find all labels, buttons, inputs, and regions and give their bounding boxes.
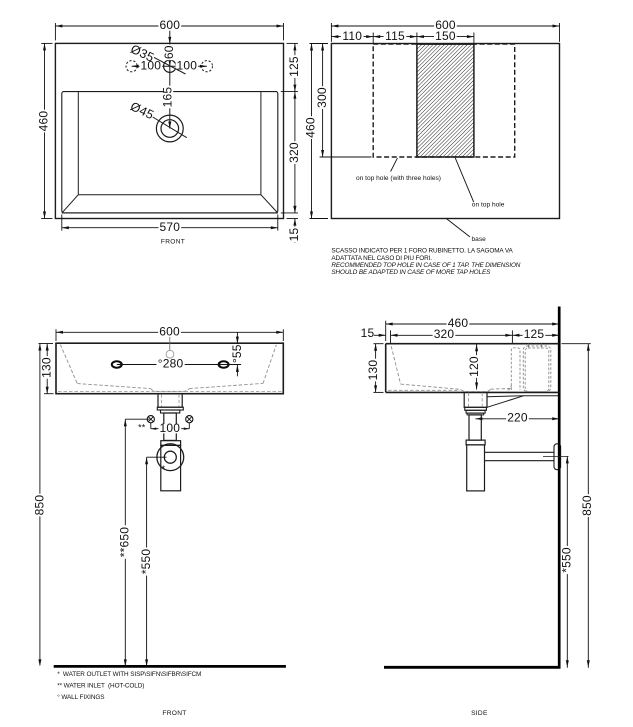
svg-text:15: 15: [361, 326, 375, 340]
svg-text:SIDE: SIDE: [471, 710, 488, 717]
svg-text:130: 130: [39, 357, 53, 378]
svg-text:320: 320: [434, 327, 455, 341]
svg-text:°280: °280: [158, 356, 184, 370]
svg-text:RECOMMENDED TOP HOLE IN CASE O: RECOMMENDED TOP HOLE IN CASE OF 1 TAP. T…: [331, 262, 520, 269]
svg-text:570: 570: [159, 220, 180, 234]
svg-text:165: 165: [161, 87, 175, 108]
svg-text:600: 600: [159, 18, 180, 32]
svg-text:130: 130: [366, 360, 380, 381]
svg-text:Ø45: Ø45: [128, 99, 156, 122]
svg-text:15: 15: [287, 228, 301, 242]
svg-text:*550: *550: [560, 547, 574, 573]
svg-text:460: 460: [304, 117, 318, 138]
svg-text:850: 850: [580, 495, 594, 516]
svg-text:320: 320: [287, 142, 301, 163]
svg-text:SCASSO INDICATO PER 1 FORO RUB: SCASSO INDICATO PER 1 FORO RUBINETTO. LA…: [331, 248, 513, 255]
svg-text:* WATER OUTLET WITH SISP\SIFN: * WATER OUTLET WITH SISP\SIFN\SIFBR\SIFC…: [57, 671, 201, 678]
svg-text:60: 60: [162, 45, 176, 59]
svg-text:150: 150: [435, 29, 456, 43]
svg-text:125: 125: [524, 327, 545, 341]
svg-text:°55: °55: [230, 344, 244, 363]
svg-text:115: 115: [385, 29, 405, 43]
svg-text:850: 850: [33, 495, 47, 516]
svg-text:ADATTATA NEL CASO DI PIU FORI.: ADATTATA NEL CASO DI PIU FORI.: [331, 255, 432, 262]
svg-text:FRONT: FRONT: [162, 710, 186, 717]
svg-text:300: 300: [315, 87, 329, 108]
svg-text:**: **: [138, 422, 146, 432]
svg-text:110: 110: [342, 29, 362, 43]
svg-text:on top hole (with three holes): on top hole (with three holes): [356, 175, 441, 182]
svg-text:100: 100: [159, 421, 180, 435]
svg-text:100: 100: [176, 58, 197, 72]
svg-text:** WATER INLET (HOT-COLD): ** WATER INLET (HOT-COLD): [57, 683, 144, 690]
svg-text:SHOULD BE ADAPTED IN CASE OF M: SHOULD BE ADAPTED IN CASE OF MORE TAP HO…: [331, 269, 491, 276]
svg-text:125: 125: [287, 56, 301, 77]
svg-text:on top hole: on top hole: [472, 202, 505, 209]
svg-text:*550: *550: [139, 549, 153, 575]
svg-text:FRONT: FRONT: [161, 238, 185, 245]
svg-text:600: 600: [159, 325, 180, 339]
svg-text:**650: **650: [118, 527, 132, 557]
svg-text:° WALL FIXINGS: ° WALL FIXINGS: [57, 693, 104, 701]
svg-text:*: *: [162, 464, 166, 474]
svg-text:460: 460: [37, 111, 51, 132]
svg-text:120: 120: [467, 356, 481, 377]
svg-text:220: 220: [507, 411, 528, 425]
svg-text:base: base: [472, 236, 487, 243]
